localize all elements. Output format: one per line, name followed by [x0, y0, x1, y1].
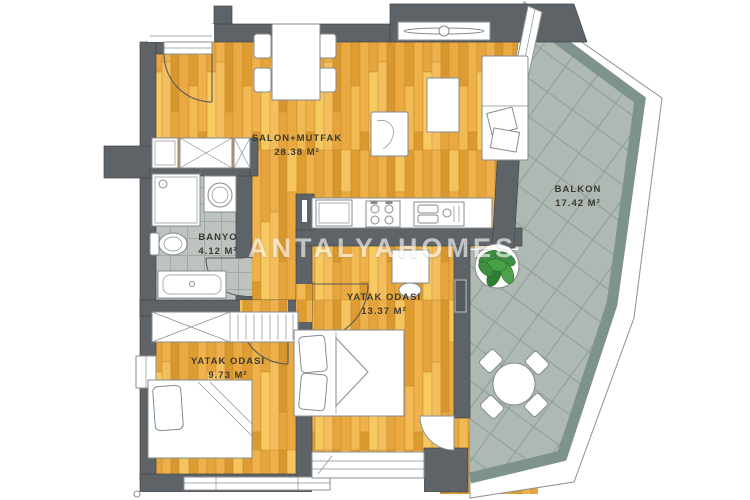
toilet: [150, 233, 187, 255]
dining-chair: [254, 68, 271, 92]
coffee-table: [427, 78, 459, 132]
room-label-salon-mutfak: SALON+MUTFAK 28.38 M²: [252, 132, 342, 160]
room-name: YATAK ODASI: [191, 355, 265, 369]
sink-vanity: [158, 271, 226, 298]
room-label-yatak-odasi-1: YATAK ODASI 13.37 M²: [347, 291, 421, 319]
room-name: BANYO: [198, 231, 237, 245]
room-area: 17.42 M²: [555, 197, 601, 211]
dining-chair: [254, 34, 271, 58]
room-name: SALON+MUTFAK: [252, 132, 342, 146]
room-label-banyo: BANYO 4.12 M²: [198, 231, 237, 259]
room-area: 13.37 M²: [361, 305, 407, 319]
bed-single: [148, 380, 252, 458]
pillow: [298, 373, 327, 411]
wall-bedroom1-right: [454, 246, 470, 418]
shower: [152, 174, 200, 226]
floor-plan-page: SALON+MUTFAK 28.38 M² BALKON 17.42 M² BA…: [0, 0, 750, 500]
wardrobe-bedroom2: [152, 312, 298, 342]
sofa-pillow: [490, 128, 519, 152]
dining-chair: [319, 34, 336, 58]
room-label-balkon: BALKON 17.42 M²: [555, 183, 602, 211]
stove: [366, 201, 400, 227]
exterior-bottom: [130, 492, 440, 500]
pillow: [152, 385, 183, 431]
kitchen-sink: [414, 202, 464, 226]
room-label-yatak-odasi-2: YATAK ODASI 9.73 M²: [191, 355, 265, 383]
washing-machine: [204, 176, 236, 212]
wall-bedroom1-corner-block: [424, 448, 468, 492]
exterior-top-left: [148, 24, 214, 42]
room-area: 4.12 M²: [198, 245, 237, 259]
dining-chair: [319, 68, 336, 92]
bedroom1-window: [312, 452, 424, 478]
tv-unit: [455, 280, 466, 312]
sofa: [482, 56, 528, 160]
duct-slot: [302, 200, 307, 222]
watermark: ANTALYAHOMES: [248, 233, 517, 264]
wall-left-bump: [104, 146, 156, 178]
bed-double: [294, 330, 404, 416]
wall-chimney: [214, 6, 232, 26]
balcony-round-table: [493, 363, 535, 405]
room-area: 9.73 M²: [208, 369, 247, 383]
shoe-cabinet: [152, 138, 178, 168]
entry-closets: [152, 138, 250, 168]
bedroom2-window: [184, 477, 330, 490]
room-name: BALKON: [555, 183, 602, 197]
kitchen: [302, 198, 492, 228]
exterior-survey-mark: [134, 491, 140, 497]
fridge: [316, 200, 352, 226]
dining-table: [272, 24, 320, 100]
armchair: [371, 112, 408, 156]
room-name: YATAK ODASI: [347, 291, 421, 305]
room-area: 28.38 M²: [274, 146, 320, 160]
pillow: [298, 335, 327, 373]
